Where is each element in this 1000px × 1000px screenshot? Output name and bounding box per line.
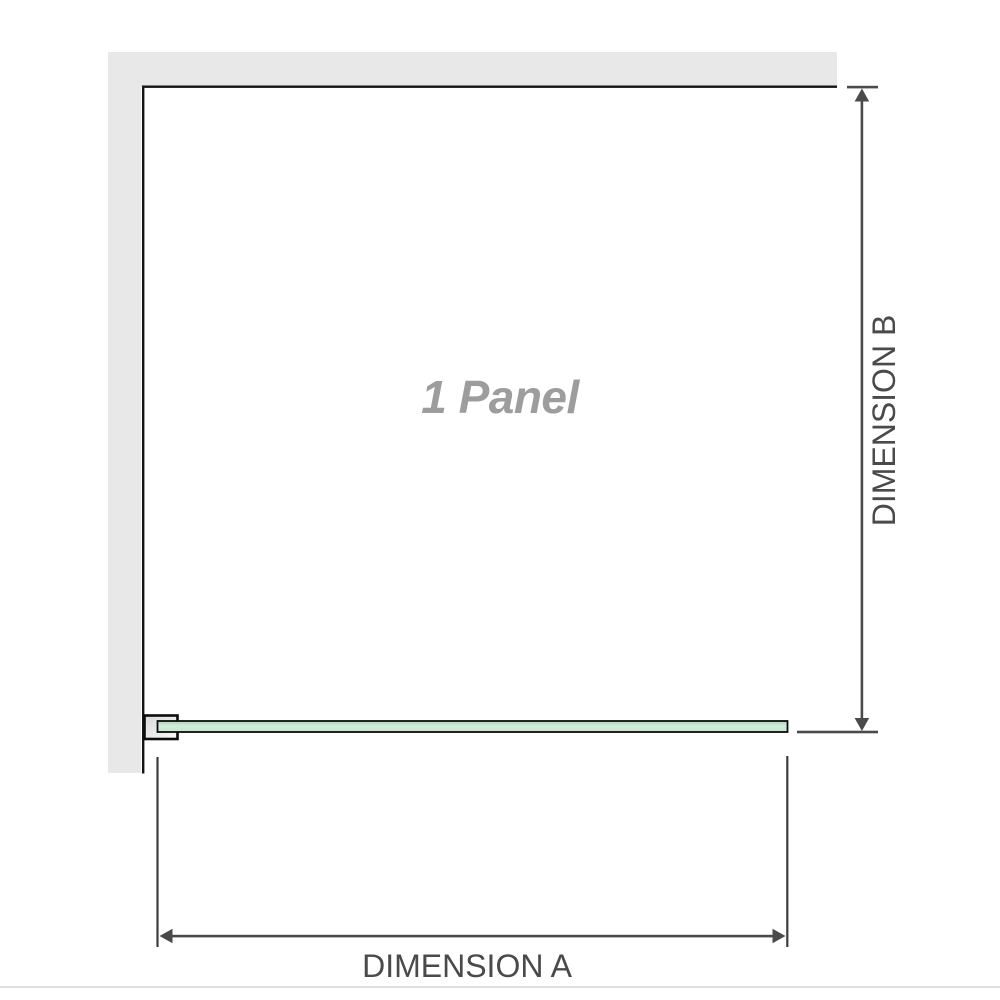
svg-text:DIMENSION B: DIMENSION B: [866, 315, 902, 527]
svg-text:DIMENSION A: DIMENSION A: [362, 948, 572, 984]
svg-text:1 Panel: 1 Panel: [421, 371, 580, 423]
